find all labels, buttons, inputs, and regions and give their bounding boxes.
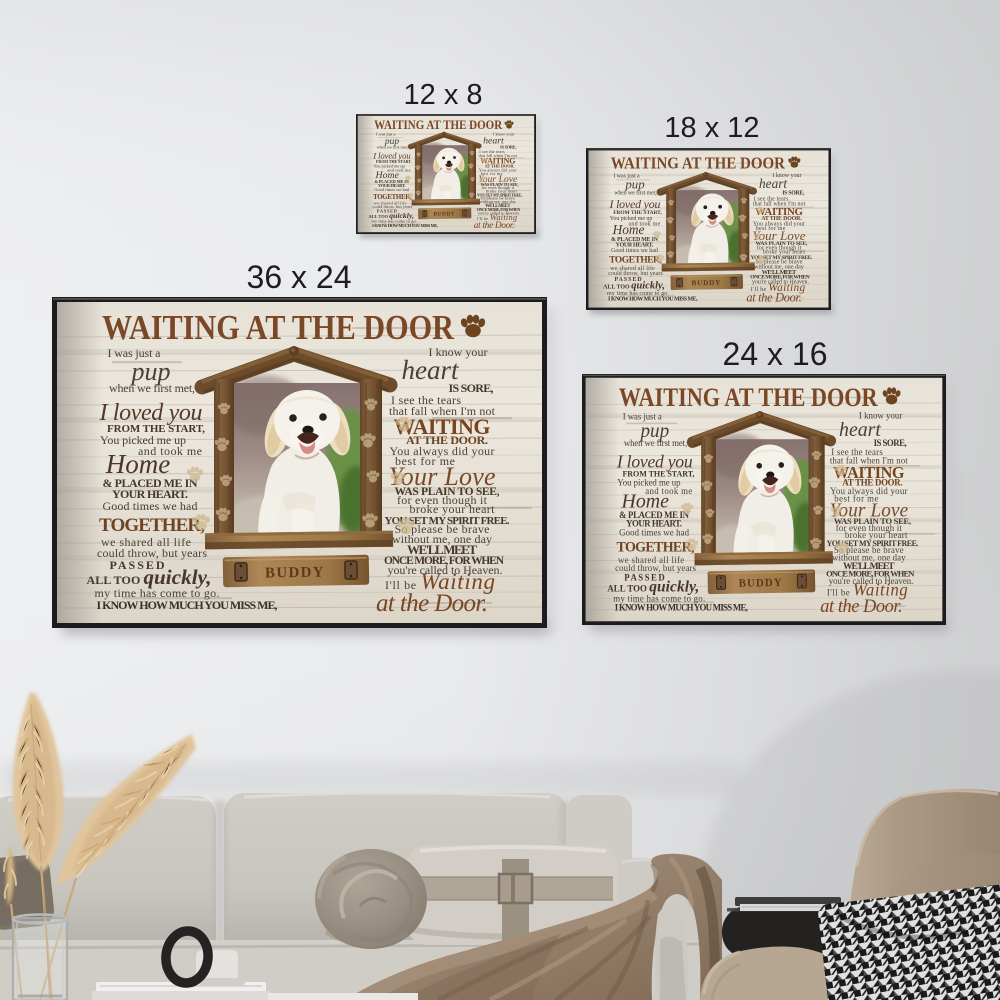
svg-text:36 x 24: 36 x 24 [247,259,352,295]
svg-text:24 x 16: 24 x 16 [723,336,828,372]
svg-text:12 x 8: 12 x 8 [404,79,483,111]
svg-text:18 x 12: 18 x 12 [664,112,759,144]
